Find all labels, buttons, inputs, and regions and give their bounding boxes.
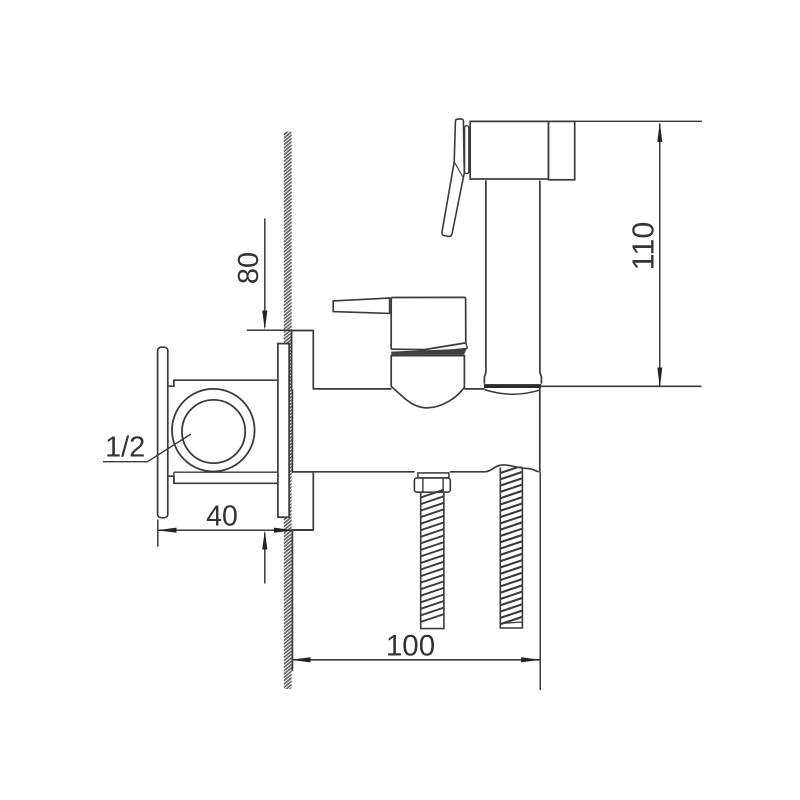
svg-text:1/2: 1/2	[105, 432, 145, 464]
svg-text:110: 110	[627, 222, 661, 271]
svg-text:40: 40	[206, 501, 238, 533]
svg-text:100: 100	[386, 630, 435, 663]
svg-text:80: 80	[233, 252, 265, 284]
